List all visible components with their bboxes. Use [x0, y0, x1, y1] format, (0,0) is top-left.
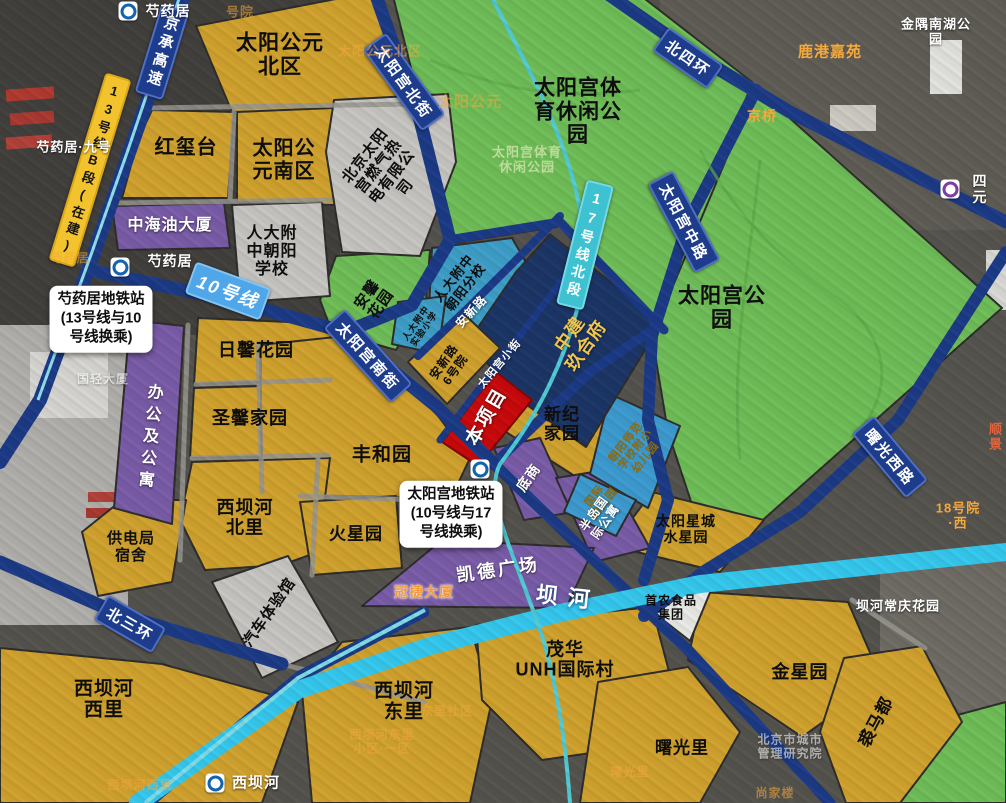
label-yard-faint: 号院 — [226, 6, 254, 21]
label-sun-palace-south: 太阳公 元南区 — [253, 137, 316, 182]
infobox-shaoyaoju-interchange: 芍药居地铁站 (13号线与10 号线换乘) — [50, 286, 153, 353]
label-hongxitai: 红玺台 — [155, 137, 218, 160]
subway-station-icon-shaoyaoju-top — [119, 2, 138, 21]
label-dongli-community: 东里社区 — [421, 705, 473, 719]
label-sun-palace-north-faint: 太阳公元北区 — [338, 45, 422, 60]
label-bahe-changqing: 坝河常庆花园 — [856, 600, 940, 615]
label-shaoyaoju-no9: 芍药居·九号 — [36, 141, 111, 156]
label-xinji-home: 新纪 家园 — [544, 405, 580, 443]
subway-station-icon-shaoyaoju — [111, 258, 130, 277]
label-xibahe-west: 西坝河 西里 — [74, 679, 134, 722]
subway-station-icon-xibahe — [206, 774, 225, 793]
label-shaoyaoju-top: 芍药居 — [146, 4, 191, 20]
label-maohua-unh: 茂华 UNH国际村 — [516, 640, 615, 681]
label-jingqiao: 京桥 — [747, 109, 777, 125]
label-rixin-garden: 日馨花园 — [218, 340, 294, 360]
map-canvas: 太阳公元 北区 红玺台 太阳公 元南区 中海油大厦 人大附 中朝阳 学校 北京太… — [0, 0, 1006, 803]
label-jinyu-nanhu-park: 金隅南湖公园 — [901, 17, 971, 46]
label-xibahe-west-faint: 西坝河西里 — [107, 779, 172, 793]
label-shunjing: 顺景 — [989, 422, 1003, 451]
label-shangjialou: 尚家楼 — [755, 787, 794, 801]
label-lugang-jiayuan: 鹿港嘉苑 — [798, 45, 862, 62]
label-jinxing-garden: 金星园 — [772, 662, 829, 682]
label-xibahe-station: 西坝河 — [232, 776, 280, 793]
label-mars-garden: 火星园 — [329, 524, 383, 543]
label-fengheyuan: 丰和园 — [352, 444, 412, 465]
label-sports-park-faint: 太阳宫体育 休闲公园 — [492, 145, 562, 174]
subway-station-icon-siyuan — [941, 180, 960, 199]
label-sun-star-city: 太阳星城 水星园 — [656, 514, 716, 546]
label-zhonghaiyou: 中海油大厦 — [127, 217, 212, 235]
label-shengxin-home: 圣馨家园 — [212, 408, 288, 428]
label-dongli-block1: 西坝河东里 小区·一区 — [349, 728, 414, 755]
label-shaoyaoju-line10: 芍药居 — [148, 254, 193, 270]
label-shounong: 首农食品 集团 — [645, 594, 697, 621]
label-shuguangli: 曙光里 — [655, 738, 709, 757]
label-guanjie-tower: 冠捷大厦 — [394, 585, 454, 601]
label-power-dorm: 供电局 宿舍 — [107, 531, 155, 565]
label-bahe-river: 坝河 — [534, 577, 601, 616]
minor-road — [118, 200, 330, 203]
label-sports-park: 太阳宫体 育休闲公 园 — [534, 76, 622, 147]
label-sun-palace-faint: 太阳公元 — [438, 95, 502, 112]
infobox-taiyanggong-interchange: 太阳宫地铁站 (10号线与17 号线换乘) — [400, 481, 503, 548]
label-sun-palace-north: 太阳公元 北区 — [236, 31, 324, 78]
label-siyuan-station: 四元 — [967, 174, 993, 206]
label-yard18-west: 18号院·西 — [934, 501, 982, 530]
label-shaoyaoju-faint: 芍药居 — [50, 252, 89, 266]
label-shuguangli-faint: 曙光里 — [610, 766, 649, 780]
label-sun-palace-park: 太阳宫公 园 — [678, 284, 766, 331]
label-city-mgmt: 北京市城市 管理研究院 — [757, 733, 822, 760]
label-rdfz-chaoyang-school: 人大附 中朝阳 学校 — [246, 225, 297, 279]
subway-station-icon-taiyanggong — [471, 460, 490, 479]
label-guoqing-tower: 国轻大厦 — [77, 373, 129, 387]
label-xibahe-north: 西坝河 北里 — [217, 498, 274, 539]
